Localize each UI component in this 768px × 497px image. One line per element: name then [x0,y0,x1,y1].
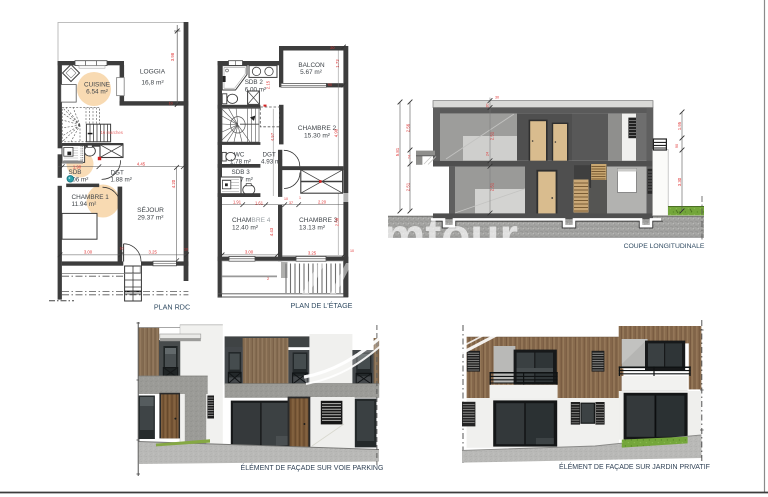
svg-text:PLAN DE L'ÉTAGE: PLAN DE L'ÉTAGE [291,301,353,310]
svg-text:2.15: 2.15 [266,80,271,89]
svg-text:30: 30 [495,95,499,99]
svg-text:10: 10 [169,102,173,106]
svg-text:1.90: 1.90 [73,164,82,169]
svg-text:4.20: 4.20 [171,179,176,188]
svg-text:1.73: 1.73 [335,59,340,68]
svg-text:90: 90 [675,144,679,148]
svg-text:3.25: 3.25 [308,251,317,256]
svg-text:3.00: 3.00 [245,250,254,255]
svg-text:PLAN RDC: PLAN RDC [154,303,190,312]
svg-text:1.95: 1.95 [677,121,682,130]
svg-text:2.51: 2.51 [490,131,495,140]
svg-text:12.40 m²: 12.40 m² [232,225,259,232]
svg-text:3.30: 3.30 [677,177,682,186]
svg-text:2.56: 2.56 [405,123,410,132]
svg-text:20: 20 [486,104,490,108]
svg-text:ÉLÉMENT DE FAÇADE SUR VOIE PAR: ÉLÉMENT DE FAÇADE SUR VOIE PARKING [241,463,384,472]
svg-text:1.88 m²: 1.88 m² [111,177,132,184]
svg-text:DGT: DGT [111,170,124,177]
svg-text:ÉLÉMENT DE FAÇADE SUR JARDIN P: ÉLÉMENT DE FAÇADE SUR JARDIN PRIVATIF [559,462,710,471]
svg-text:CUISINE: CUISINE [84,82,110,89]
svg-text:DGT: DGT [263,152,276,159]
svg-text:11.94 m²: 11.94 m² [72,201,97,208]
svg-text:10: 10 [120,247,124,251]
svg-text:CHAMBRE 4: CHAMBRE 4 [232,217,271,224]
svg-text:2.51: 2.51 [490,182,495,191]
svg-text:CHAMBRE 2: CHAMBRE 2 [298,125,337,132]
svg-text:5.67 m²: 5.67 m² [300,69,322,76]
svg-text:29.37 m²: 29.37 m² [137,215,164,222]
svg-text:10: 10 [350,249,354,253]
svg-text:SDB 2: SDB 2 [245,79,264,86]
svg-text:3.98: 3.98 [170,52,175,61]
svg-text:74: 74 [407,155,411,159]
svg-text:4.90: 4.90 [334,128,339,137]
svg-text:3.25: 3.25 [149,250,158,255]
svg-text:SÉJOUR: SÉJOUR [137,205,164,214]
svg-text:24: 24 [486,152,490,156]
svg-text:37: 37 [289,201,293,205]
svg-text:2.51: 2.51 [405,182,410,191]
svg-text:10: 10 [284,197,288,201]
svg-text:1: 1 [299,196,301,200]
svg-text:SDB 3: SDB 3 [232,169,251,176]
svg-text:1.61: 1.61 [255,200,264,205]
svg-text:2.58: 2.58 [335,217,340,226]
svg-text:16 marches: 16 marches [101,130,123,135]
svg-text:mtour: mtour [383,210,518,263]
svg-text:15.30 m²: 15.30 m² [304,133,331,140]
svg-text:13.13 m²: 13.13 m² [299,225,326,232]
svg-text:20: 20 [330,46,334,50]
svg-text:6.54 m²: 6.54 m² [86,89,108,96]
svg-text:5.81: 5.81 [395,147,400,156]
svg-text:3.00: 3.00 [84,250,93,255]
svg-text:CHAMBRE 1: CHAMBRE 1 [72,194,110,201]
svg-text:90: 90 [328,83,332,87]
svg-text:10: 10 [184,248,188,252]
svg-text:4.43: 4.43 [269,227,274,236]
svg-text:4.45: 4.45 [137,161,146,166]
svg-text:BALCON: BALCON [298,62,325,69]
svg-text:SDB: SDB [69,169,82,176]
svg-text:LOGGIA: LOGGIA [140,69,166,76]
svg-text:1.91: 1.91 [233,200,242,205]
svg-text:2.20: 2.20 [318,200,327,205]
svg-text:4.57: 4.57 [270,132,275,141]
svg-text:WC: WC [234,152,245,159]
svg-text:16,8 m²: 16,8 m² [141,80,164,87]
svg-text:COUPE LONGITUDINALE: COUPE LONGITUDINALE [624,243,705,250]
svg-text:CHAMBRE 3: CHAMBRE 3 [299,217,338,224]
